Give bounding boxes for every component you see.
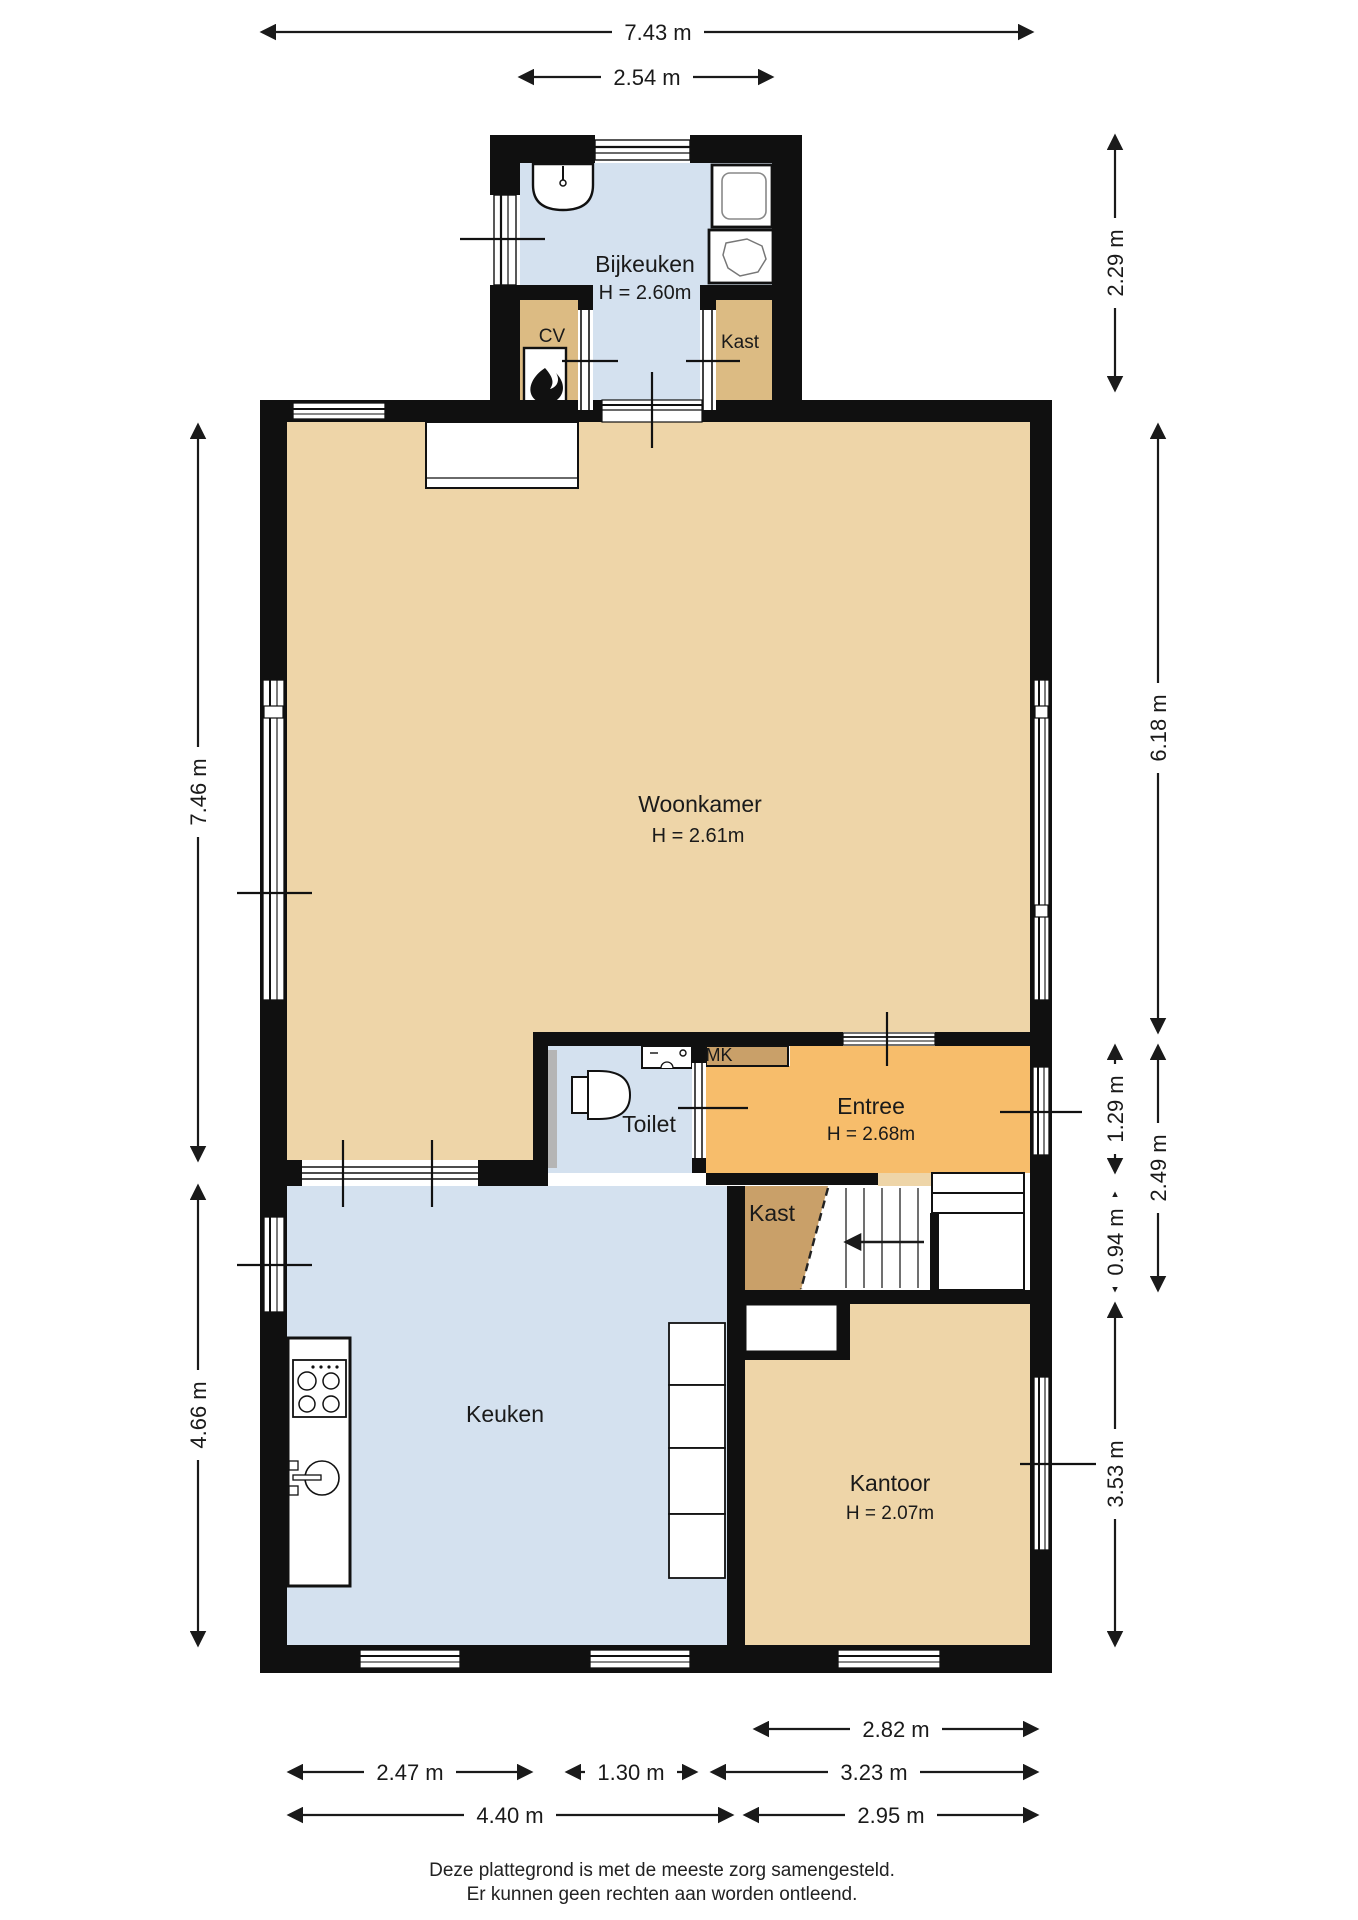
stairs-landing-step2: [932, 1193, 1024, 1213]
dim-right-kantoor: 3.53 m: [1103, 1440, 1128, 1507]
dim-right-hal: 2.49 m: [1146, 1134, 1171, 1201]
floorplan-page: 7.43 m 2.54 m 2.29 m 6.18 m 1.29 m 2.49 …: [0, 0, 1358, 1920]
dryer-icon: [709, 230, 773, 283]
utility-sink-icon: [533, 164, 593, 210]
label-bijkeuken: Bijkeuken: [595, 251, 695, 277]
understairs-closet: [745, 1304, 838, 1352]
dim-left-woonkamer: 7.46 m: [186, 758, 211, 825]
dim-right-entree: 1.29 m: [1103, 1075, 1128, 1142]
stove-icon: [293, 1360, 346, 1417]
dim-bottom-kantoor-totaal: 2.95 m: [857, 1803, 924, 1828]
room-entree-top: [790, 1046, 1030, 1066]
footer-line2: Er kunnen geen rechten aan worden ontlee…: [467, 1884, 858, 1905]
dim-bottom-kantoor-raam: 2.82 m: [862, 1717, 929, 1742]
floorplan-drawing: 7.43 m 2.54 m 2.29 m 6.18 m 1.29 m 2.49 …: [0, 0, 1358, 1920]
window-keuken-bottom-right: [590, 1650, 690, 1668]
label-entree: Entree: [837, 1093, 905, 1119]
window-woonkamer-top: [293, 403, 385, 419]
dim-top-total: 7.43 m: [624, 20, 691, 45]
label-kast-hal: Kast: [749, 1200, 796, 1226]
room-fills: [287, 163, 1030, 1645]
stairs-landing-step1: [932, 1173, 1024, 1193]
staircase: [745, 1173, 1024, 1290]
window-woonkamer-right: [1034, 680, 1049, 1000]
label-woonkamer-height: H = 2.61m: [652, 825, 745, 847]
label-kast-boven: Kast: [721, 332, 760, 353]
dim-bottom-midden: 1.30 m: [597, 1760, 664, 1785]
label-keuken: Keuken: [466, 1401, 544, 1427]
label-entree-height: H = 2.68m: [827, 1124, 915, 1145]
toilet-radiator: [548, 1050, 557, 1168]
kitchen-sink-icon: [289, 1461, 339, 1495]
dim-bottom-keuken-totaal: 4.40 m: [476, 1803, 543, 1828]
stairs-void: [938, 1213, 1024, 1290]
footer-line1: Deze plattegrond is met de meeste zorg s…: [429, 1860, 895, 1881]
label-toilet: Toilet: [622, 1111, 676, 1137]
dim-right-bijkeuken: 2.29 m: [1103, 229, 1128, 296]
sideboard: [426, 422, 578, 488]
dim-left-keuken: 4.66 m: [186, 1381, 211, 1448]
label-woonkamer: Woonkamer: [638, 791, 762, 817]
cabinet-column: [669, 1323, 725, 1578]
label-kantoor-height: H = 2.07m: [846, 1503, 934, 1524]
window-bijkeuken-top: [595, 140, 690, 160]
dim-bottom-rechts: 3.23 m: [840, 1760, 907, 1785]
toilet-sink-icon: [642, 1046, 692, 1068]
room-entree: [706, 1066, 1030, 1173]
label-bijkeuken-height: H = 2.60m: [599, 282, 692, 304]
label-mk: MK: [706, 1045, 733, 1065]
label-cv: CV: [539, 326, 566, 347]
dim-right-trap: 0.94 m: [1103, 1208, 1128, 1275]
window-kantoor-bottom: [838, 1650, 940, 1668]
kitchen-counter: [288, 1338, 350, 1586]
dim-bottom-keuken-links: 2.47 m: [376, 1760, 443, 1785]
washing-machine-icon: [712, 165, 772, 227]
entree-stair-strip: [878, 1173, 932, 1186]
window-keuken-bottom-left: [360, 1650, 460, 1668]
dim-top-bijkeuken: 2.54 m: [613, 65, 680, 90]
label-kantoor: Kantoor: [850, 1470, 931, 1496]
footer: Deze plattegrond is met de meeste zorg s…: [429, 1860, 895, 1905]
dim-right-woonkamer: 6.18 m: [1146, 694, 1171, 761]
